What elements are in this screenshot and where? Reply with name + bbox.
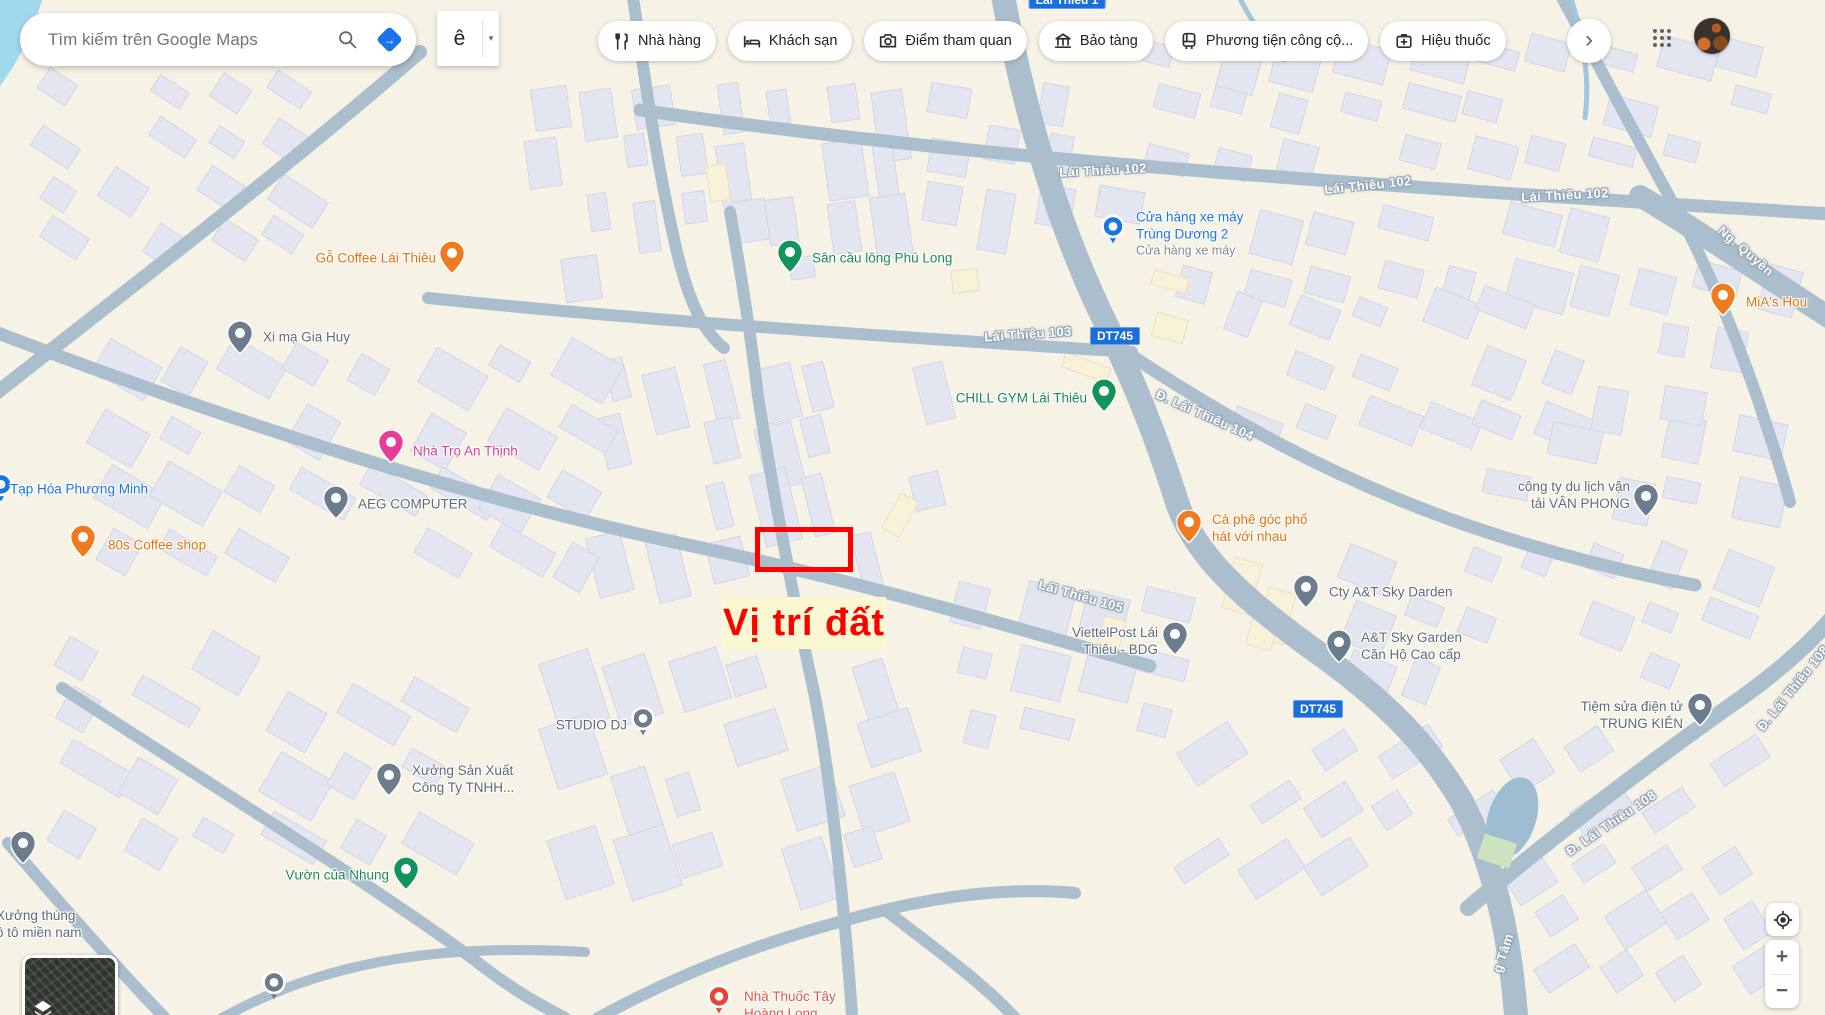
land-plot-rectangle — [755, 527, 853, 572]
poi-label-line: Công Ty TNHH... — [412, 779, 514, 796]
chip-label: Khách sạn — [769, 33, 838, 49]
poi-label-line: 80s Coffee shop — [108, 537, 206, 554]
pharmacy-icon — [1395, 32, 1413, 50]
xi-ma-gia-huy-label[interactable]: Xi mạ Gia Huy — [263, 329, 350, 346]
go-coffee-lai-thieu-marker-icon[interactable] — [440, 241, 465, 274]
chip-label: Phương tiện công cộ... — [1206, 33, 1353, 49]
at-sky-garden-can-ho-cao-cap-label[interactable]: A&T Sky GardenCăn Hộ Cao cấp — [1361, 629, 1462, 663]
mias-hou-label[interactable]: MiA's Hou — [1746, 294, 1807, 311]
road-label: Ng. Quyền — [1715, 223, 1777, 279]
xuong-thung-o-to-mien-nam-label[interactable]: Xưởng thùngô tô miền nam — [0, 907, 82, 941]
vuon-cua-nhung-label[interactable]: Vườn của Nhung — [286, 867, 389, 884]
zoom-in-button[interactable]: + — [1765, 940, 1799, 974]
nha-thuoc-tay-hoang-long-marker-icon[interactable] — [706, 984, 732, 1015]
search-button[interactable] — [326, 13, 369, 66]
poi-label-line: Xưởng thùng — [0, 907, 82, 924]
poi-label-line: Cửa hàng xe máy — [1136, 209, 1243, 226]
80s-coffee-shop-marker-icon[interactable] — [71, 525, 96, 558]
hotel-icon — [743, 32, 761, 50]
cua-hang-xe-may-trung-duong-2-marker-icon[interactable] — [1100, 214, 1126, 246]
road-label: Lái Thiêu 102 — [1521, 185, 1609, 205]
nha-thuoc-tay-hoang-long-label[interactable]: Nhà Thuốc TâyHoàng Long — [744, 988, 836, 1015]
land-plot-label: Vị trí đất — [722, 597, 886, 649]
crosshair-icon — [1773, 910, 1793, 930]
input-tool-label: ê — [437, 27, 482, 51]
chip-attractions[interactable]: Điểm tham quan — [864, 21, 1026, 61]
nha-tro-an-thinh-label[interactable]: Nhà Trọ An Thịnh — [413, 443, 518, 460]
museum-icon — [1054, 32, 1072, 50]
poi-label-line: Sân cầu lông Phú Long — [812, 250, 952, 267]
poi-label-line: Nhà Thuốc Tây — [744, 988, 836, 1005]
road-label: g Tâm — [1490, 932, 1517, 975]
chip-label: Nhà hàng — [638, 33, 701, 49]
cua-hang-xe-may-trung-duong-2-label[interactable]: Cửa hàng xe máyTrùng Dương 2Cửa hàng xe … — [1136, 209, 1243, 260]
school-poi-marker-icon[interactable] — [261, 970, 287, 1002]
san-cau-long-phu-long-label[interactable]: Sân cầu lông Phú Long — [812, 250, 952, 267]
chill-gym-lai-thieu-label[interactable]: CHILL GYM Lái Thiêu — [956, 390, 1087, 407]
my-location-button[interactable] — [1766, 903, 1799, 936]
cong-ty-du-lich-van-tai-van-phong-marker-icon[interactable] — [1634, 484, 1659, 517]
chip-label: Hiệu thuốc — [1421, 33, 1490, 49]
poi-label-line: MiA's Hou — [1746, 294, 1807, 311]
vuon-cua-nhung-marker-icon[interactable] — [394, 857, 419, 890]
xuong-thung-o-to-mien-nam-marker-icon[interactable] — [11, 831, 36, 864]
more-categories-button[interactable]: › — [1567, 19, 1611, 63]
poi-label-line: Tạp Hóa Phương Minh — [10, 481, 148, 498]
satellite-layer-toggle[interactable] — [22, 955, 118, 1015]
xuong-san-xuat-cong-ty-tnhh-marker-icon[interactable] — [377, 763, 402, 796]
zoom-out-button[interactable]: − — [1765, 975, 1799, 1009]
poi-label-line: Vườn của Nhung — [286, 867, 389, 884]
poi-label-line: Cty A&T Sky Darden — [1329, 584, 1453, 601]
poi-label-line: Xưởng Sản Xuất — [412, 762, 514, 779]
chip-pharmacies[interactable]: Hiệu thuốc — [1380, 21, 1505, 61]
poi-label-line: Căn Hộ Cao cấp — [1361, 646, 1462, 663]
go-coffee-lai-thieu-label[interactable]: Gỗ Coffee Lái Thiêu — [316, 250, 436, 267]
cong-ty-du-lich-van-tai-van-phong-label[interactable]: công ty du lịch vậntải VÂN PHONG — [1518, 478, 1630, 512]
cty-at-sky-darden-marker-icon[interactable] — [1294, 575, 1319, 608]
land-plot-label-text: Vị trí đất — [723, 602, 885, 645]
poi-label-line: A&T Sky Garden — [1361, 629, 1462, 646]
tiem-sua-dien-tu-trung-kien-label[interactable]: Tiệm sửa điện tửTRUNG KIÊN — [1581, 698, 1683, 732]
studio-dj-marker-icon[interactable] — [630, 706, 656, 738]
poi-label-line: ViettelPost Lái — [1072, 624, 1158, 641]
transit-icon — [1180, 32, 1198, 50]
cty-at-sky-darden-label[interactable]: Cty A&T Sky Darden — [1329, 584, 1453, 601]
chip-transit[interactable]: Phương tiện công cộ... — [1165, 21, 1368, 61]
poi-label-line: Hoàng Long — [744, 1005, 836, 1015]
poi-label-line: STUDIO DJ — [556, 717, 627, 734]
poi-label-line: hát với nhau — [1212, 528, 1307, 545]
road-label: Đ. Lái Thiêu 108 — [1754, 642, 1825, 733]
poi-label-line: tải VÂN PHONG — [1518, 495, 1630, 512]
chip-label: Điểm tham quan — [905, 33, 1011, 49]
tap-hoa-phuong-minh-label[interactable]: Tạp Hóa Phương Minh — [10, 481, 148, 498]
map-labels-layer: Lái Thiêu 102Lái Thiêu 102Lái Thiêu 102L… — [0, 0, 1825, 1015]
poi-label-line: công ty du lịch vận — [1518, 478, 1630, 495]
poi-label-line: AEG COMPUTER — [358, 496, 468, 513]
route-badge: DT745 — [1090, 327, 1140, 345]
studio-dj-label[interactable]: STUDIO DJ — [556, 717, 627, 734]
road-label: Lái Thiêu 105 — [1037, 577, 1125, 616]
xi-ma-gia-huy-marker-icon[interactable] — [228, 321, 253, 354]
google-apps-button[interactable] — [1650, 26, 1674, 50]
road-label: Lái Thiêu 102 — [1324, 173, 1413, 197]
topbar: → ê ▾ Nhà hàng Khách sạn — [0, 0, 1825, 80]
chill-gym-lai-thieu-marker-icon[interactable] — [1092, 379, 1117, 412]
poi-label-line: TRUNG KIÊN — [1581, 715, 1683, 732]
poi-label-line: Thiêu - BDG — [1072, 641, 1158, 658]
chip-hotels[interactable]: Khách sạn — [728, 21, 853, 61]
layers-icon — [32, 998, 54, 1015]
road-label: Đ. Lái Thiêu 104 — [1154, 387, 1256, 444]
poi-label-line: CHILL GYM Lái Thiêu — [956, 390, 1087, 407]
viettelpost-lai-thieu-bdg-marker-icon[interactable] — [1163, 622, 1188, 655]
80s-coffee-shop-label[interactable]: 80s Coffee shop — [108, 537, 206, 554]
input-tools-button[interactable]: ê ▾ — [437, 11, 499, 66]
account-avatar[interactable] — [1694, 18, 1730, 54]
restaurant-icon — [613, 33, 630, 50]
aeg-computer-label[interactable]: AEG COMPUTER — [358, 496, 468, 513]
road-label: Đ. Lái Thiêu 108 — [1563, 787, 1659, 858]
mias-hou-marker-icon[interactable] — [1711, 283, 1736, 316]
poi-label-line: Tiệm sửa điện tử — [1581, 698, 1683, 715]
aeg-computer-marker-icon[interactable] — [324, 486, 349, 519]
chip-restaurants[interactable]: Nhà hàng — [598, 21, 716, 61]
search-input[interactable] — [46, 29, 326, 51]
chip-museums[interactable]: Bảo tàng — [1039, 21, 1153, 61]
ca-phe-goc-pho-hat-voi-nhau-label[interactable]: Cà phê góc phốhát với nhau — [1212, 511, 1307, 545]
viettelpost-lai-thieu-bdg-label[interactable]: ViettelPost LáiThiêu - BDG — [1072, 624, 1158, 658]
camera-icon — [879, 32, 897, 50]
xuong-san-xuat-cong-ty-tnhh-label[interactable]: Xưởng Sản XuấtCông Ty TNHH... — [412, 762, 514, 796]
route-badge: DT745 — [1293, 700, 1343, 718]
search-bar[interactable]: → — [20, 13, 416, 66]
search-icon — [337, 29, 358, 50]
chevron-down-icon[interactable]: ▾ — [483, 33, 499, 44]
san-cau-long-phu-long-marker-icon[interactable] — [778, 240, 803, 273]
category-chips: Nhà hàng Khách sạn Điểm tham quan — [598, 21, 1506, 61]
poi-label-line: ô tô miền nam — [0, 924, 82, 941]
ca-phe-goc-pho-hat-voi-nhau-marker-icon[interactable] — [1177, 510, 1202, 543]
tiem-sua-dien-tu-trung-kien-marker-icon[interactable] — [1688, 693, 1713, 726]
zoom-controls: + − — [1765, 940, 1799, 1008]
road-label: Lái Thiêu 102 — [1059, 160, 1147, 180]
poi-label-line: Xi mạ Gia Huy — [263, 329, 350, 346]
road-label: Lái Thiêu 103 — [984, 323, 1072, 344]
apps-grid-icon — [1650, 26, 1674, 50]
nha-tro-an-thinh-marker-icon[interactable] — [379, 430, 404, 463]
directions-icon: → — [376, 26, 403, 53]
poi-label-line: Cà phê góc phố — [1212, 511, 1307, 528]
directions-button[interactable]: → — [369, 13, 416, 66]
poi-label-line: Gỗ Coffee Lái Thiêu — [316, 250, 436, 267]
poi-sublabel: Cửa hàng xe máy — [1136, 243, 1243, 260]
google-maps-app: Lái Thiêu 102Lái Thiêu 102Lái Thiêu 102L… — [0, 0, 1825, 1015]
poi-label-line: Trùng Dương 2 — [1136, 226, 1243, 243]
chip-label: Bảo tàng — [1080, 33, 1138, 49]
poi-label-line: Nhà Trọ An Thịnh — [413, 443, 518, 460]
at-sky-garden-can-ho-cao-cap-marker-icon[interactable] — [1327, 630, 1352, 663]
